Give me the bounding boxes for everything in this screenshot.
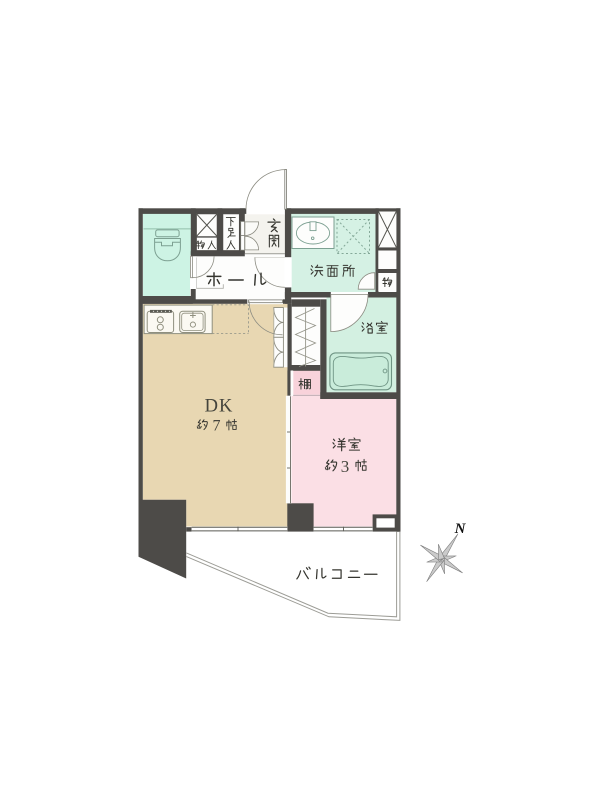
svg-text:N: N bbox=[454, 521, 467, 537]
svg-text:3: 3 bbox=[341, 457, 350, 476]
svg-text:7: 7 bbox=[213, 418, 221, 435]
svg-text:DK: DK bbox=[205, 397, 234, 417]
